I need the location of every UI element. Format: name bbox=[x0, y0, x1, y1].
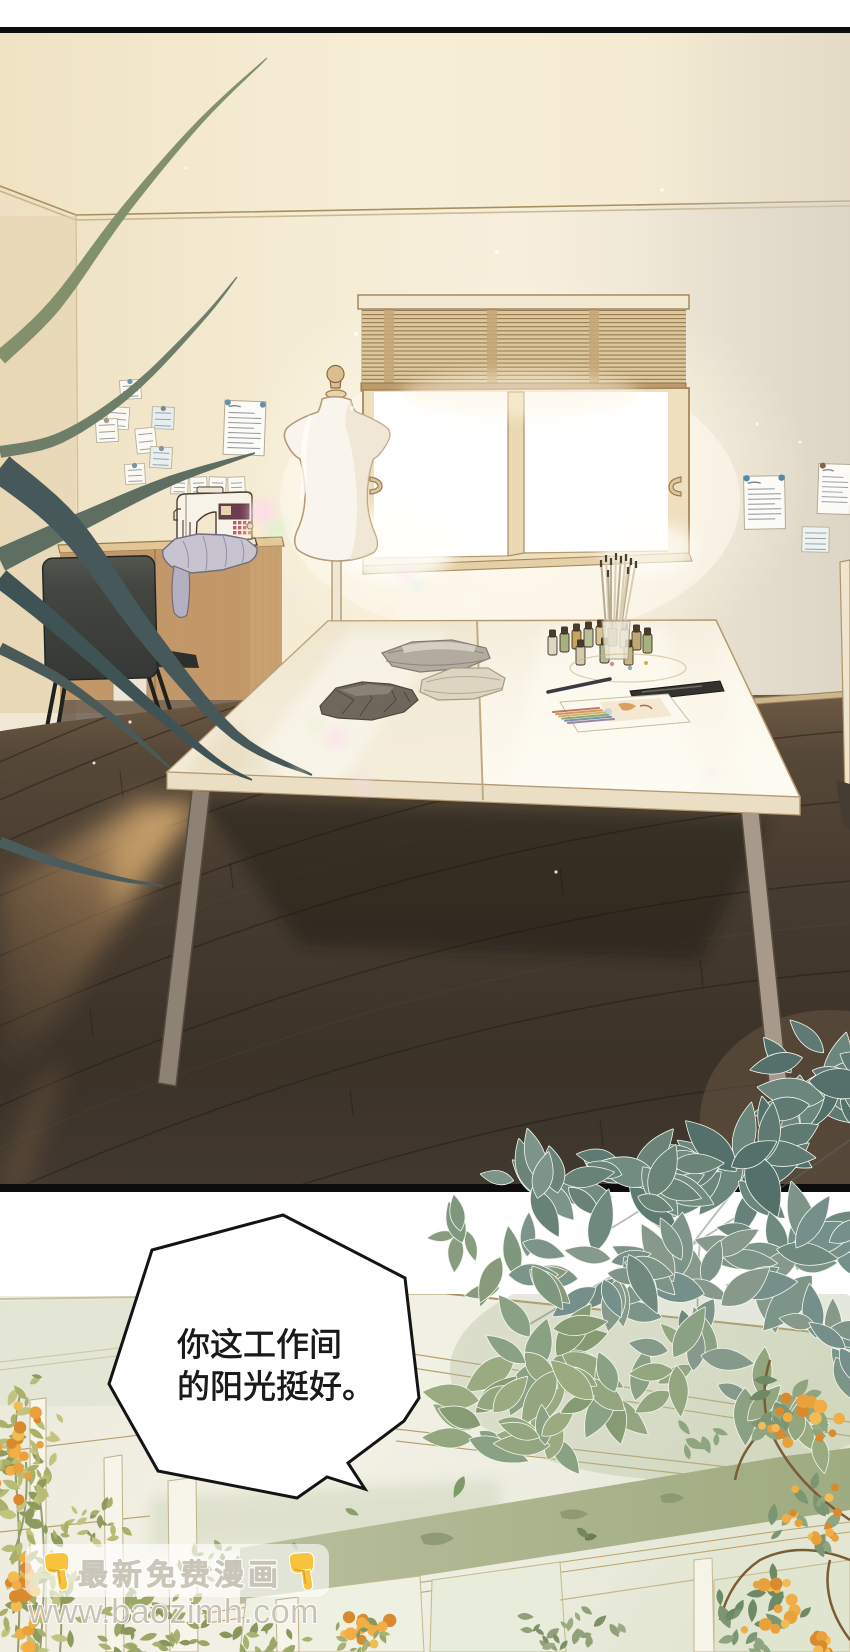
svg-text:www.baozimh.com: www.baozimh.com bbox=[27, 1593, 319, 1631]
